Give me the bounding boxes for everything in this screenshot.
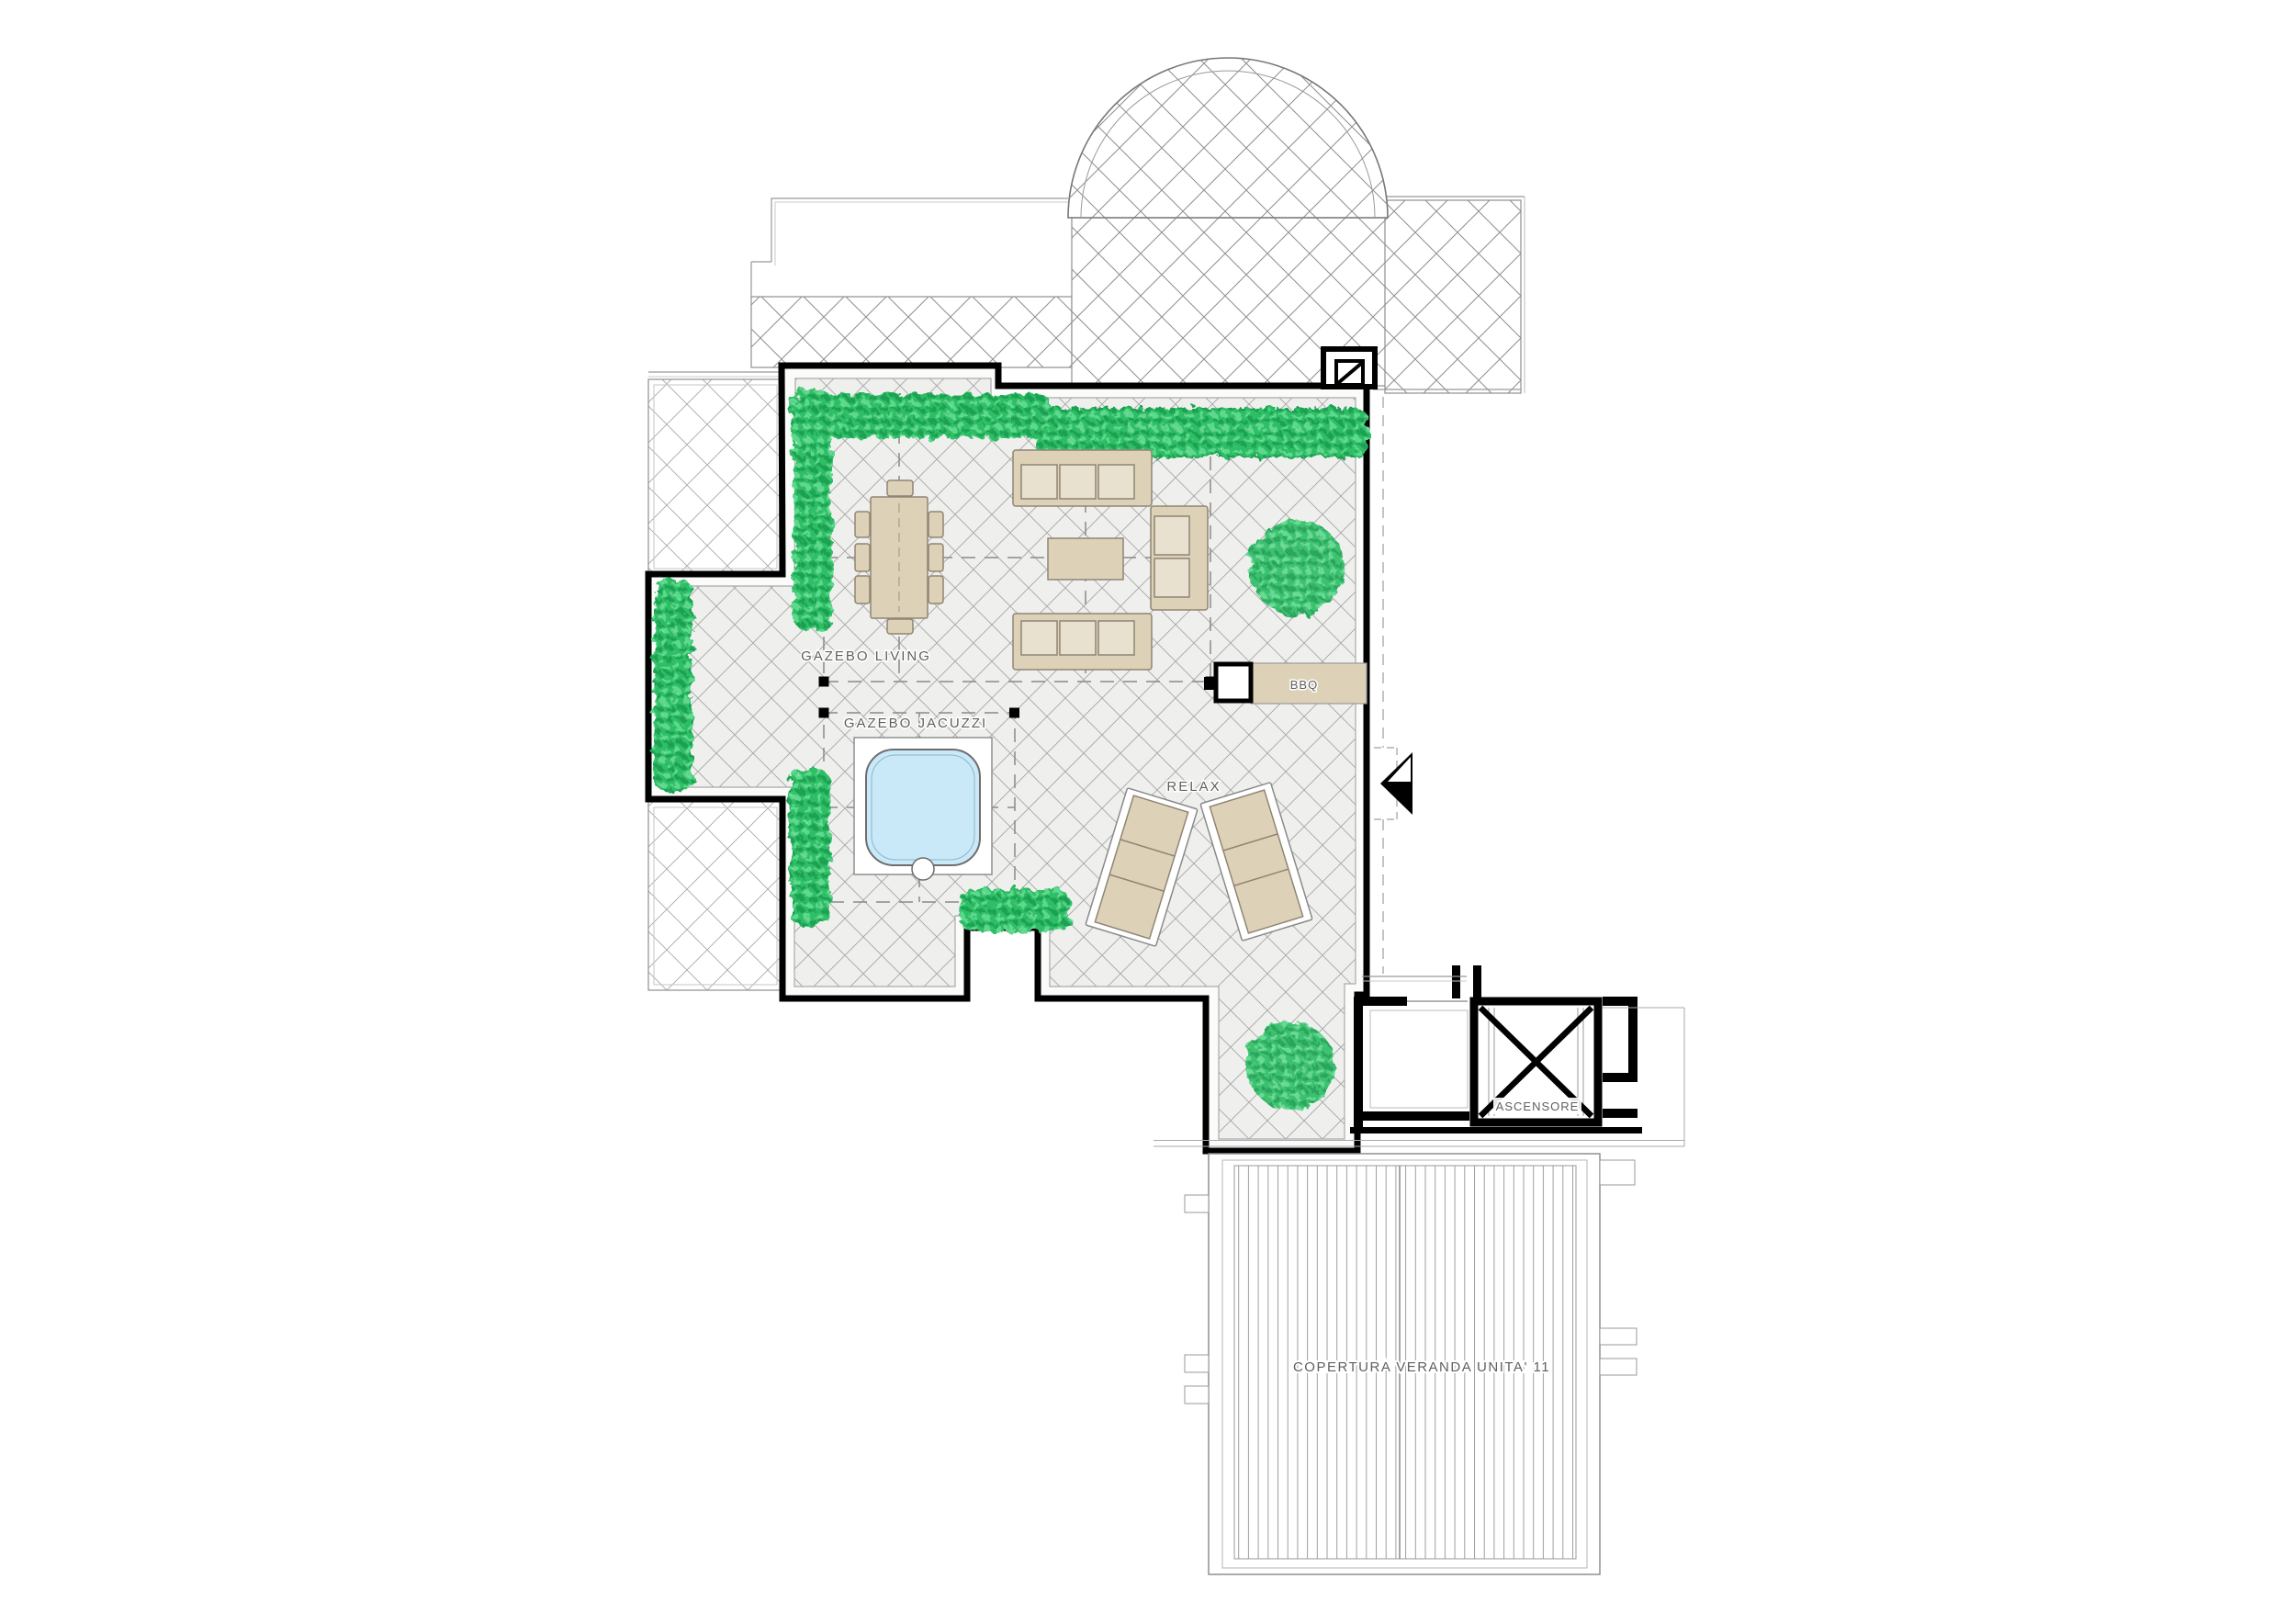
hedge-left-lower <box>790 770 830 926</box>
label-gazebo-jacuzzi: GAZEBO JACUZZI <box>844 716 987 731</box>
roof-terrace-plan-drawing: GAZEBO LIVING GAZEBO JACUZZI RELAX BBQ A… <box>0 0 2296 1624</box>
label-gazebo-living: GAZEBO LIVING <box>801 648 931 664</box>
label-elevator: ASCENSORE <box>1496 1100 1580 1113</box>
dining-chair <box>929 544 943 571</box>
label-relax: RELAX <box>1166 779 1221 795</box>
tree-lower <box>1246 1021 1334 1110</box>
jacuzzi <box>854 738 992 880</box>
floor-plan-canvas: GAZEBO LIVING GAZEBO JACUZZI RELAX BBQ A… <box>0 0 2296 1624</box>
dining-chair <box>887 480 913 496</box>
stair-room <box>1354 997 1469 1132</box>
dining-chair <box>855 512 870 537</box>
bbq-unit <box>1216 664 1251 701</box>
dining-chair <box>855 576 870 603</box>
jacuzzi-pool <box>866 750 980 865</box>
hedge-left-upper <box>793 389 832 630</box>
label-bbq: BBQ <box>1290 678 1318 692</box>
tree-upper <box>1249 520 1345 615</box>
hedge-jacuzzi <box>960 889 1070 931</box>
label-veranda: COPERTURA VERANDA UNITA' 11 <box>1293 1359 1550 1375</box>
coffee-table <box>1048 538 1123 580</box>
dining-chair <box>887 619 913 634</box>
vent-symbol-icon <box>1323 349 1375 387</box>
eave-dashed-lines <box>1374 397 1397 974</box>
upper-roof-terrace <box>751 58 1525 393</box>
bbq-area <box>1204 663 1367 704</box>
dining-chair <box>929 576 943 603</box>
hedge-corridor <box>654 579 692 792</box>
dining-chair <box>855 544 870 571</box>
dining-chair <box>929 512 943 537</box>
arched-roof <box>1068 58 1388 218</box>
